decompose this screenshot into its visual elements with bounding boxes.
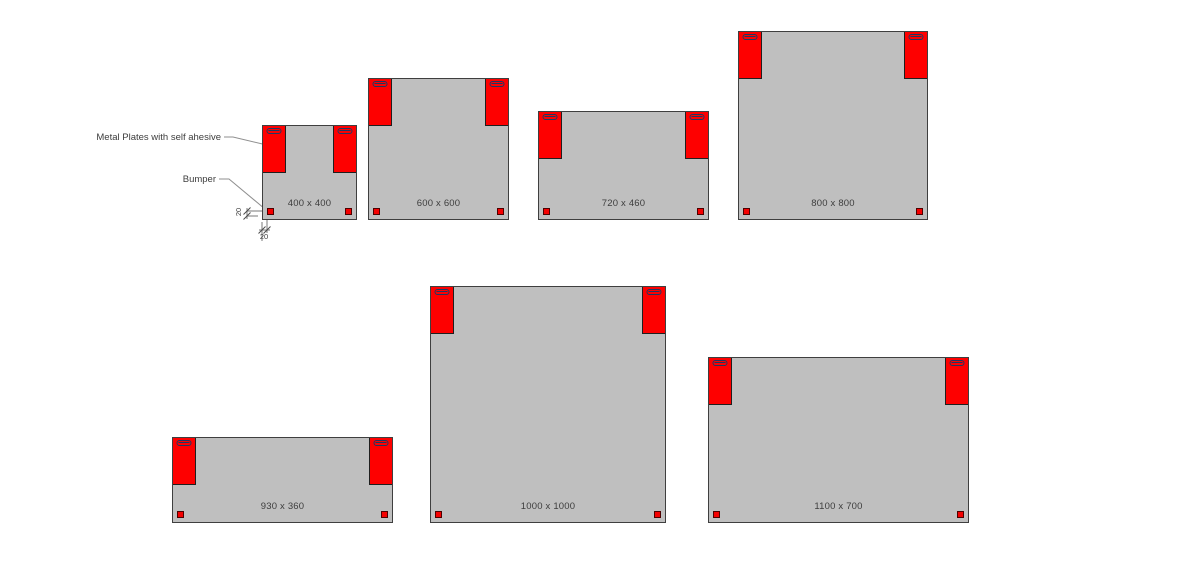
metal-plate-top-left [173, 438, 196, 485]
plate-slot [909, 34, 924, 40]
metal-plate-top-left [369, 79, 392, 126]
metal-plates-annotation-label: Metal Plates with self ahesive [0, 132, 221, 143]
panel-1100x700: 1100 x 700 [708, 357, 969, 523]
bumper-bottom-right [497, 208, 504, 215]
plate-slot [543, 114, 558, 120]
panel-size-label: 720 x 460 [539, 198, 708, 209]
technical-drawing-canvas: Metal Plates with self ahesive Bumper 20… [0, 0, 1200, 579]
metal-plate-top-right [642, 287, 665, 334]
metal-plate-top-left [739, 32, 762, 79]
metal-plate-top-right [685, 112, 708, 159]
metal-plate-top-right [333, 126, 356, 173]
panel-600x600: 600 x 600 [368, 78, 509, 220]
metal-plate-top-left [539, 112, 562, 159]
plate-slot [374, 440, 389, 446]
panel-size-label: 600 x 600 [369, 198, 508, 209]
bumper-bottom-left [267, 208, 274, 215]
bumper-bottom-left [713, 511, 720, 518]
plate-slot [435, 289, 450, 295]
dim-tick [244, 208, 251, 215]
metal-plate-top-right [369, 438, 392, 485]
bumper-bottom-left [435, 511, 442, 518]
bumper-bottom-left [543, 208, 550, 215]
metal-plate-top-left [263, 126, 286, 173]
plate-slot [647, 289, 662, 295]
bumper-bottom-right [957, 511, 964, 518]
bumper-leader-line [219, 179, 265, 209]
panel-size-label: 1000 x 1000 [431, 501, 665, 512]
plate-slot [338, 128, 353, 134]
plate-slot [177, 440, 192, 446]
panel-size-label: 1100 x 700 [709, 501, 968, 512]
panel-930x360: 930 x 360 [172, 437, 393, 523]
bumper-bottom-right [697, 208, 704, 215]
plate-slot [713, 360, 728, 366]
bumper-bottom-left [373, 208, 380, 215]
panel-800x800: 800 x 800 [738, 31, 928, 220]
dim-tick [244, 213, 251, 220]
metal-plate-top-right [945, 358, 968, 405]
bumper-bottom-left [177, 511, 184, 518]
panel-size-label: 930 x 360 [173, 501, 392, 512]
bumper-annotation-label: Bumper [0, 174, 216, 185]
plate-slot [950, 360, 965, 366]
dimension-20-horizontal: 20 [257, 233, 271, 241]
metal-plate-top-right [485, 79, 508, 126]
plate-slot [373, 81, 388, 87]
metal-plate-top-left [709, 358, 732, 405]
bumper-bottom-right [654, 511, 661, 518]
plate-slot [690, 114, 705, 120]
bumper-bottom-right [345, 208, 352, 215]
plate-slot [267, 128, 282, 134]
dimension-20-vertical: 20 [235, 206, 243, 218]
panel-size-label: 400 x 400 [263, 198, 356, 209]
bumper-bottom-left [743, 208, 750, 215]
metal-plate-top-right [904, 32, 927, 79]
plate-slot [490, 81, 505, 87]
bumper-bottom-right [916, 208, 923, 215]
panel-1000x1000: 1000 x 1000 [430, 286, 666, 523]
bumper-bottom-right [381, 511, 388, 518]
metal-plate-top-left [431, 287, 454, 334]
panel-720x460: 720 x 460 [538, 111, 709, 220]
panel-size-label: 800 x 800 [739, 198, 927, 209]
plate-slot [743, 34, 758, 40]
panel-400x400: 400 x 400 [262, 125, 357, 220]
